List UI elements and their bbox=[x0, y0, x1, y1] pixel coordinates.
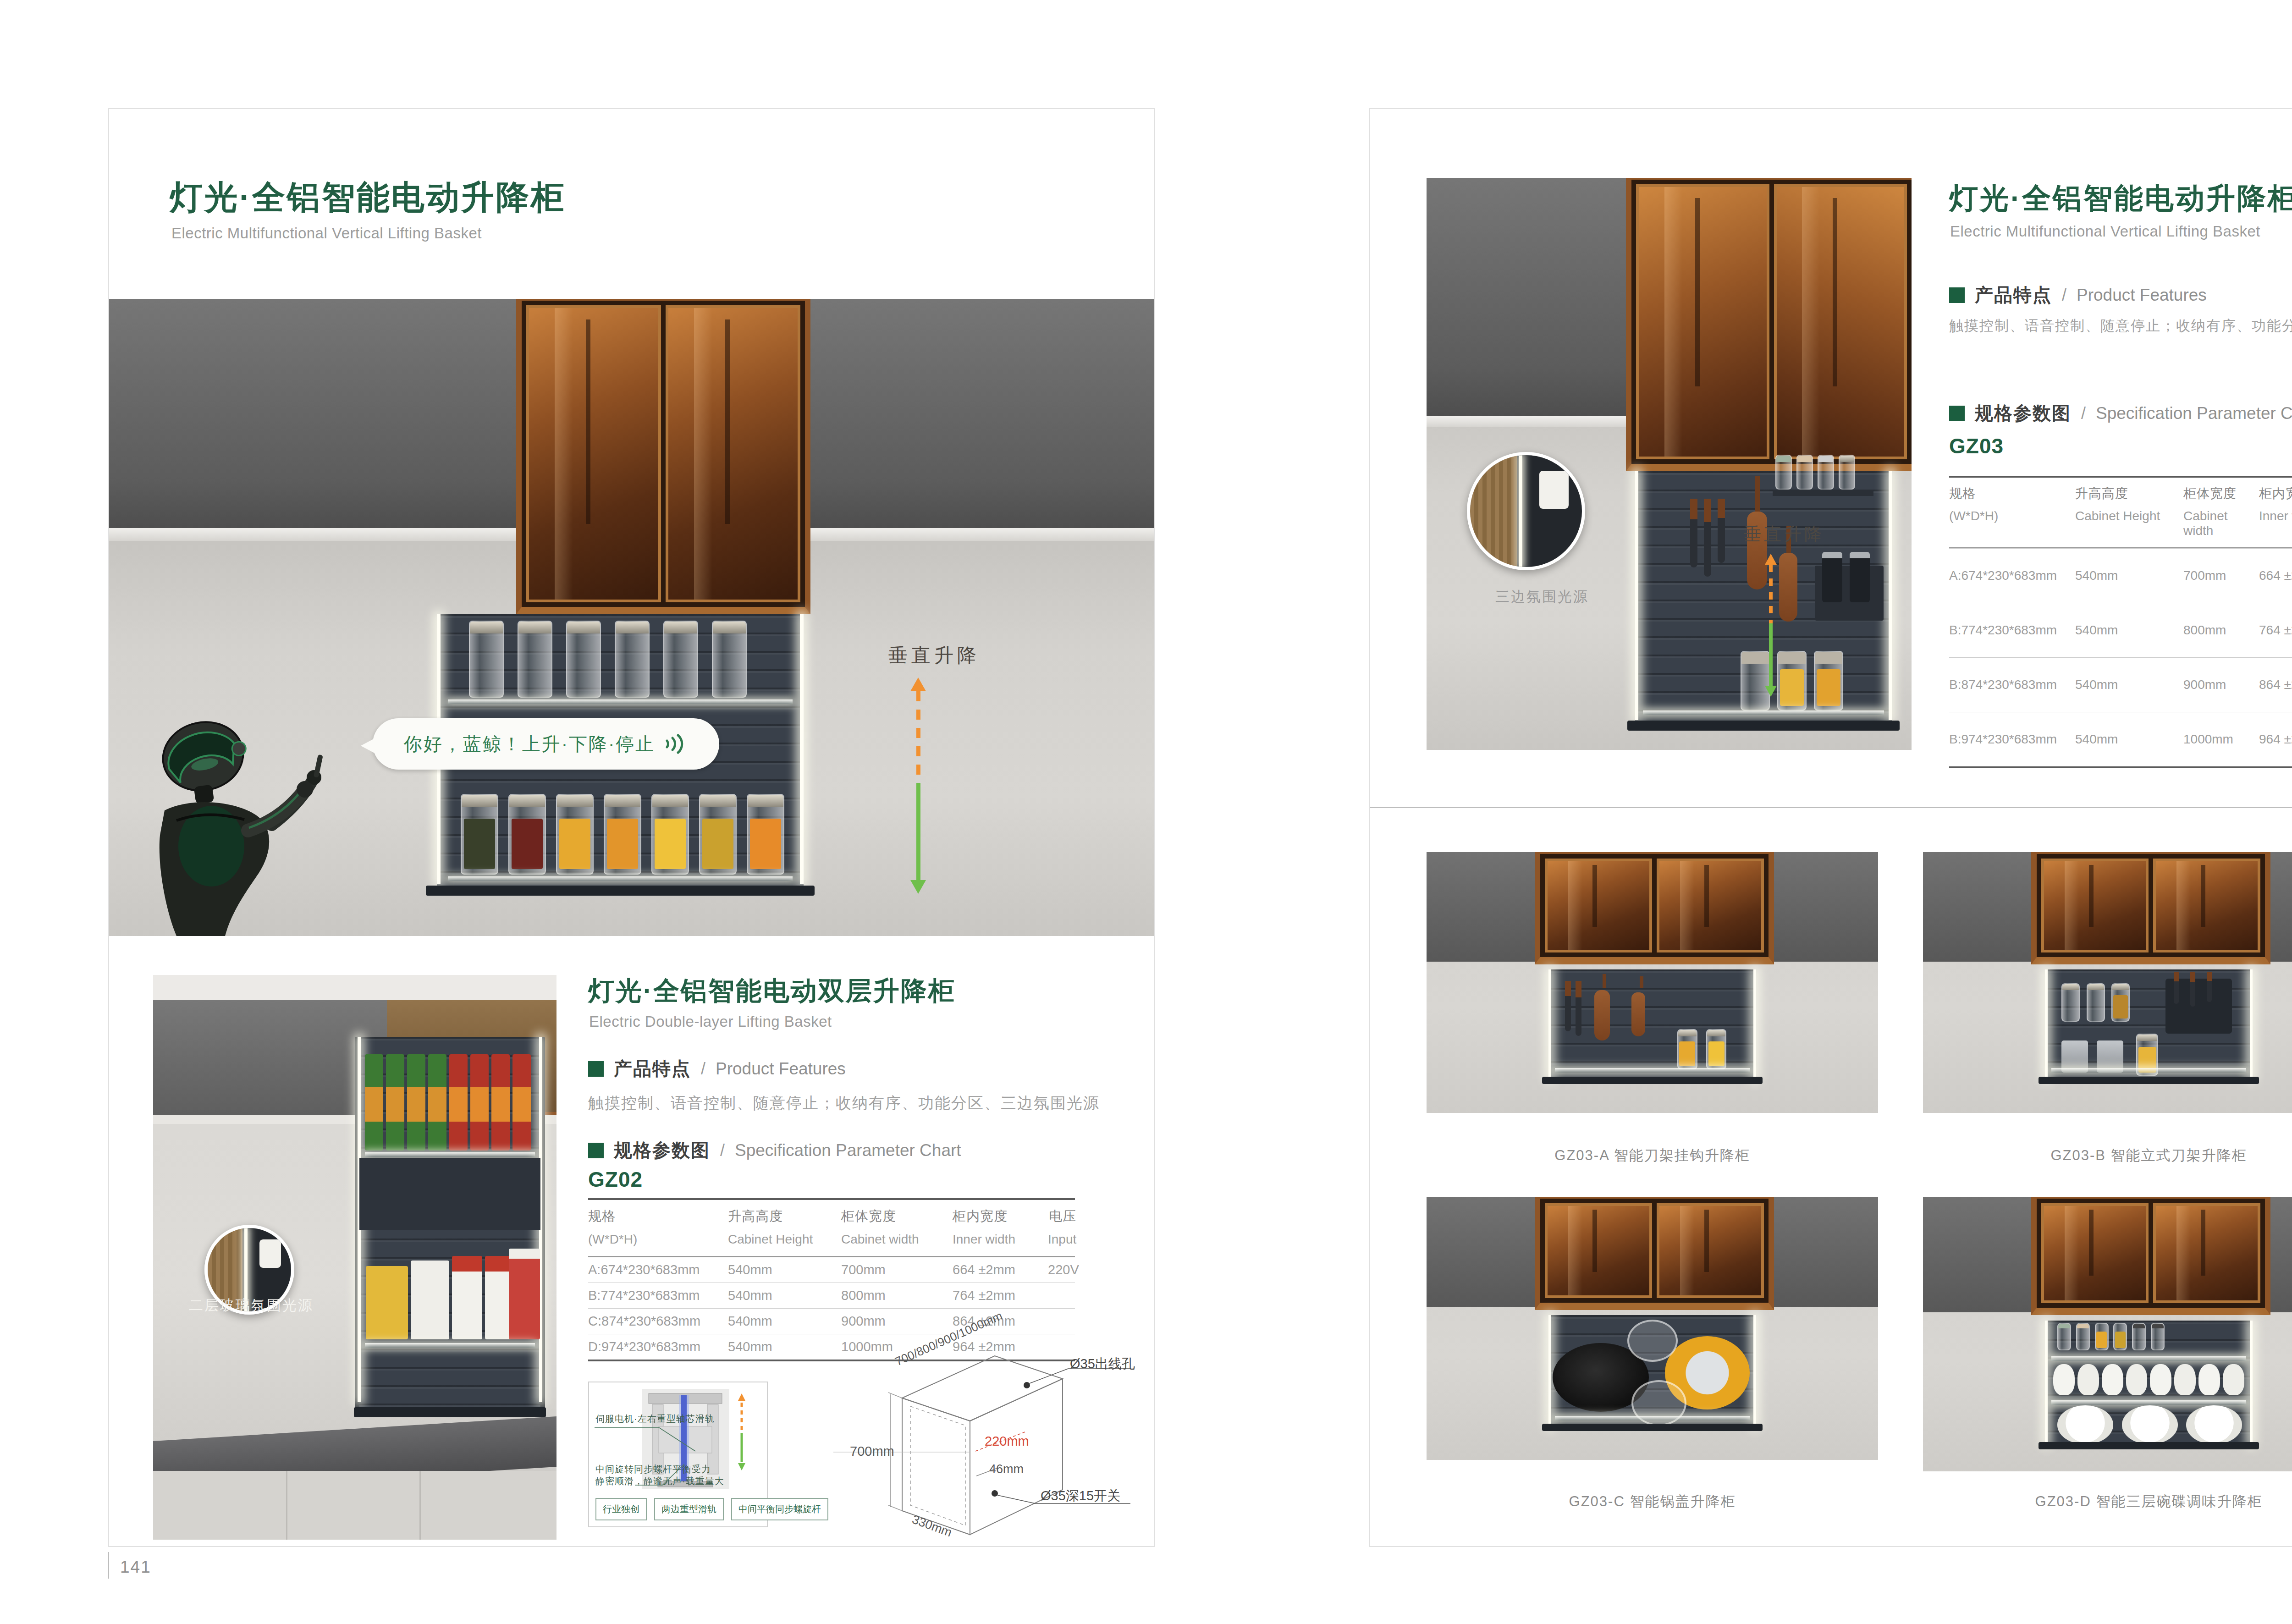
product-caption: GZ03-B 智能立式刀架升降柜 bbox=[1923, 1146, 2292, 1165]
bronze-glass-cabinet bbox=[1535, 852, 1774, 964]
spice-bottle bbox=[1775, 455, 1792, 490]
glass-jar bbox=[663, 621, 698, 698]
dim-offset: 46mm bbox=[989, 1462, 1024, 1476]
spec-table-header: 规格(W*D*H)升高高度Cabinet Height柜体宽度Cabinet w… bbox=[1949, 478, 2292, 548]
glass-lid bbox=[1627, 1320, 1678, 1362]
voice-command-text: 你好，蓝鲸！上升·下降·停止 bbox=[404, 732, 656, 757]
bronze-glass-cabinet bbox=[1535, 1197, 1774, 1310]
features-heading: 产品特点 / Product Features bbox=[1949, 282, 2207, 308]
juice-carton bbox=[491, 1054, 510, 1151]
glass-shelf bbox=[365, 1343, 535, 1348]
product-photo-gz03-b bbox=[1923, 852, 2292, 1113]
mechanism-label: 中间旋转同步螺杆平衡受力 bbox=[595, 1463, 711, 1475]
spec-table-row: B:874*230*683mm540mm900mm864 ±2mm bbox=[1949, 657, 2292, 712]
spice-bottle bbox=[1796, 455, 1813, 490]
juice-carton bbox=[428, 1054, 446, 1151]
up-arrow-icon bbox=[910, 677, 926, 691]
dim-wire-hole: Ø35出线孔 bbox=[1070, 1355, 1135, 1373]
feature-tag: 中间平衡同步螺旋杆 bbox=[731, 1498, 828, 1520]
page-subtitle: Electric Multifunctional Vertical Liftin… bbox=[1950, 223, 2260, 240]
bowl-row bbox=[2053, 1362, 2244, 1395]
dim-switch-hole: Ø35深15开关 bbox=[1041, 1487, 1120, 1505]
feature-tags: 行业独创 两边重型滑轨 中间平衡同步螺旋杆 bbox=[595, 1498, 828, 1520]
hero-photo: 你好，蓝鲸！上升·下降·停止 垂直升降 bbox=[109, 299, 1154, 936]
spec-table-row: B:774*230*683mm540mm800mm764 ±2mm bbox=[588, 1283, 1075, 1308]
feature-callout-label: 二层玻璃氛围光源 bbox=[189, 1296, 314, 1315]
spec-table-row: A:674*230*683mm540mm700mm664 ±2mm220V bbox=[1949, 548, 2292, 603]
glass-shelf bbox=[448, 699, 793, 704]
page-number-left: 141 bbox=[120, 1558, 151, 1577]
glass-jar bbox=[615, 621, 650, 698]
spice-jar bbox=[651, 794, 689, 875]
right-page: 三边氛围光源 垂直升降 灯光·全铝智能电动升降柜 Electric Multif… bbox=[1369, 108, 2292, 1547]
lifting-rack bbox=[1548, 969, 1756, 1084]
features-heading: 产品特点 / Product Features bbox=[588, 1056, 846, 1081]
base-cabinets bbox=[153, 1471, 556, 1540]
cabinet-door bbox=[666, 305, 800, 602]
down-arrow-icon bbox=[910, 880, 926, 894]
led-strip bbox=[1889, 471, 1892, 720]
lifting-rack bbox=[2045, 969, 2253, 1084]
folio-rule bbox=[108, 1552, 109, 1579]
section-subtitle: Electric Double-layer Lifting Basket bbox=[589, 1013, 832, 1030]
sound-wave-icon bbox=[664, 733, 688, 754]
mechanism-label: 静密顺滑，静谧无声·载重量大 bbox=[595, 1475, 724, 1487]
product-caption: GZ03-C 智能锅盖升降柜 bbox=[1427, 1492, 1878, 1511]
mechanism-label: 伺服电机·左右重型轴芯滑轨 bbox=[595, 1413, 715, 1425]
glass-shelf bbox=[448, 876, 793, 881]
voice-speech-bubble: 你好，蓝鲸！上升·下降·停止 bbox=[373, 718, 719, 770]
juice-carton bbox=[386, 1054, 404, 1151]
page-title: 灯光·全铝智能电动升降柜 bbox=[1949, 179, 2292, 218]
led-strip bbox=[1519, 455, 1522, 567]
features-text: 触摸控制、语音控制、随意停止；收纳有序、功能分区、三边氛围光源 bbox=[588, 1093, 1100, 1114]
spice-jar bbox=[556, 794, 594, 875]
led-strip bbox=[800, 614, 804, 884]
spec-table-row: A:674*230*683mm540mm700mm664 ±2mm220V bbox=[588, 1257, 1075, 1283]
glass-jar bbox=[469, 621, 504, 698]
section-title: 灯光·全铝智能电动双层升降柜 bbox=[588, 974, 956, 1009]
section-bullet-icon bbox=[1949, 406, 1965, 421]
plate bbox=[2186, 1405, 2242, 1444]
spice-jar bbox=[699, 794, 737, 875]
spec-table-row: B:774*230*683mm540mm800mm764 ±2mm bbox=[1949, 603, 2292, 657]
double-layer-rack bbox=[355, 1037, 545, 1417]
glass-jar bbox=[712, 621, 747, 698]
lifting-rack bbox=[1548, 1315, 1756, 1431]
juice-carton bbox=[509, 1249, 540, 1339]
milk-carton bbox=[452, 1256, 482, 1339]
lifting-rack bbox=[2045, 1321, 2253, 1450]
knife bbox=[1718, 499, 1725, 563]
spec-table-header: 规格(W*D*H)升高高度Cabinet Height柜体宽度Cabinet w… bbox=[588, 1200, 1075, 1257]
motion-label: 垂直升降 bbox=[1744, 523, 1824, 546]
model-code: GZ03 bbox=[1949, 434, 2004, 458]
spec-table-row: B:974*230*683mm540mm1000mm964 ±2mm bbox=[1949, 712, 2292, 766]
section-bullet-icon bbox=[588, 1061, 604, 1077]
zoom-callout bbox=[1467, 452, 1585, 570]
upper-cabinet-band bbox=[153, 1000, 387, 1115]
up-arrow-icon bbox=[1765, 554, 1777, 565]
spice-jar bbox=[461, 794, 498, 875]
section-bullet-icon bbox=[588, 1143, 604, 1158]
features-text: 触摸控制、语音控制、随意停止；收纳有序、功能分区、三边氛围光源 bbox=[1949, 316, 2292, 336]
motion-label: 垂直升降 bbox=[888, 643, 980, 668]
section-bullet-icon bbox=[1949, 287, 1965, 303]
juice-carton bbox=[449, 1054, 468, 1151]
spice-jar bbox=[747, 794, 784, 875]
feature-tag: 行业独创 bbox=[595, 1498, 647, 1520]
product-photo-gz03-d bbox=[1923, 1197, 2292, 1471]
wood-spatula bbox=[1779, 553, 1797, 622]
spec-table-gz03: 规格(W*D*H)升高高度Cabinet Height柜体宽度Cabinet w… bbox=[1949, 476, 2292, 768]
bronze-glass-cabinet bbox=[2031, 852, 2270, 964]
rack-base bbox=[354, 1407, 546, 1417]
pasta-jar bbox=[1777, 651, 1807, 710]
cabinet-door-open bbox=[1774, 184, 1907, 459]
product-photo-gz03-c bbox=[1427, 1197, 1878, 1460]
secondary-photo: 二层玻璃氛围光源 bbox=[153, 975, 556, 1540]
cabinet-door-open bbox=[1636, 184, 1769, 459]
plate bbox=[2122, 1405, 2178, 1444]
juice-carton bbox=[365, 1054, 383, 1151]
knife bbox=[1704, 499, 1711, 577]
catalog-spread: 灯光·全铝智能电动升降柜 Electric Multifunctional Ve… bbox=[0, 0, 2292, 1624]
food-box bbox=[411, 1261, 449, 1339]
ceiling bbox=[153, 975, 556, 1000]
bronze-glass-cabinet bbox=[1626, 178, 1912, 471]
spice-bottle bbox=[1818, 455, 1834, 490]
juice-carton bbox=[470, 1054, 489, 1151]
glass-shelf bbox=[365, 1152, 535, 1157]
food-box bbox=[366, 1266, 408, 1339]
product-caption: GZ03-A 智能刀架挂钩升降柜 bbox=[1427, 1146, 1878, 1165]
spice-bottle bbox=[1839, 455, 1855, 490]
glass-jar bbox=[518, 621, 552, 698]
robot-assistant bbox=[134, 710, 331, 936]
pasta-jar bbox=[1814, 651, 1843, 710]
spec-heading: 规格参数图 / Specification Parameter Chart bbox=[588, 1138, 961, 1163]
glass-jar bbox=[566, 621, 601, 698]
cabinet-door bbox=[526, 305, 661, 602]
rack-base bbox=[1627, 721, 1900, 731]
lifting-rack bbox=[1635, 471, 1892, 731]
rack-base bbox=[426, 886, 815, 896]
juice-carton bbox=[407, 1054, 425, 1151]
spice-jar bbox=[604, 794, 641, 875]
led-strip bbox=[1635, 471, 1638, 720]
dim-inner-depth: 220mm bbox=[985, 1434, 1029, 1449]
bronze-glass-cabinet bbox=[2031, 1197, 2270, 1315]
model-code: GZ02 bbox=[588, 1167, 643, 1192]
page-title: 灯光·全铝智能电动升降柜 bbox=[170, 176, 566, 220]
spice-shelf bbox=[1773, 490, 1873, 496]
feature-tag: 两边重型滑轨 bbox=[654, 1498, 724, 1520]
lift-arrows-icon bbox=[1765, 554, 1777, 697]
spec-table-gz02: 规格(W*D*H)升高高度Cabinet Height柜体宽度Cabinet w… bbox=[588, 1198, 1075, 1361]
grinder bbox=[1850, 552, 1870, 602]
spice-jar bbox=[508, 794, 546, 875]
lift-arrows-icon bbox=[910, 677, 926, 894]
glass-shelf bbox=[1643, 710, 1884, 715]
down-arrow-icon bbox=[1765, 686, 1777, 697]
product-photo-gz03-a bbox=[1427, 852, 1878, 1113]
mechanism-inset: 伺服电机·左右重型轴芯滑轨 中间旋转同步螺杆平衡受力 静密顺滑，静谧无声·载重量… bbox=[588, 1382, 768, 1527]
juice-carton bbox=[512, 1054, 531, 1151]
dim-height: 700mm bbox=[850, 1444, 894, 1459]
top-photo: 三边氛围光源 垂直升降 bbox=[1427, 178, 1912, 750]
page-subtitle: Electric Multifunctional Vertical Liftin… bbox=[171, 225, 482, 242]
bronze-glass-cabinet bbox=[516, 299, 810, 614]
section-divider bbox=[1370, 807, 2292, 808]
product-caption: GZ03-D 智能三层碗碟调味升降柜 bbox=[1923, 1492, 2292, 1511]
left-page: 灯光·全铝智能电动升降柜 Electric Multifunctional Ve… bbox=[108, 108, 1155, 1547]
spec-heading: 规格参数图 / Specification Parameter Chart bbox=[1949, 401, 2292, 426]
plate bbox=[2057, 1405, 2113, 1444]
knife bbox=[1690, 499, 1697, 567]
dimension-diagram: 700/800/900/1000mm Ø35出线孔 700mm 220mm 46… bbox=[833, 1342, 1136, 1544]
feature-callout-label: 三边氛围光源 bbox=[1495, 587, 1589, 606]
grinder bbox=[1822, 552, 1842, 602]
